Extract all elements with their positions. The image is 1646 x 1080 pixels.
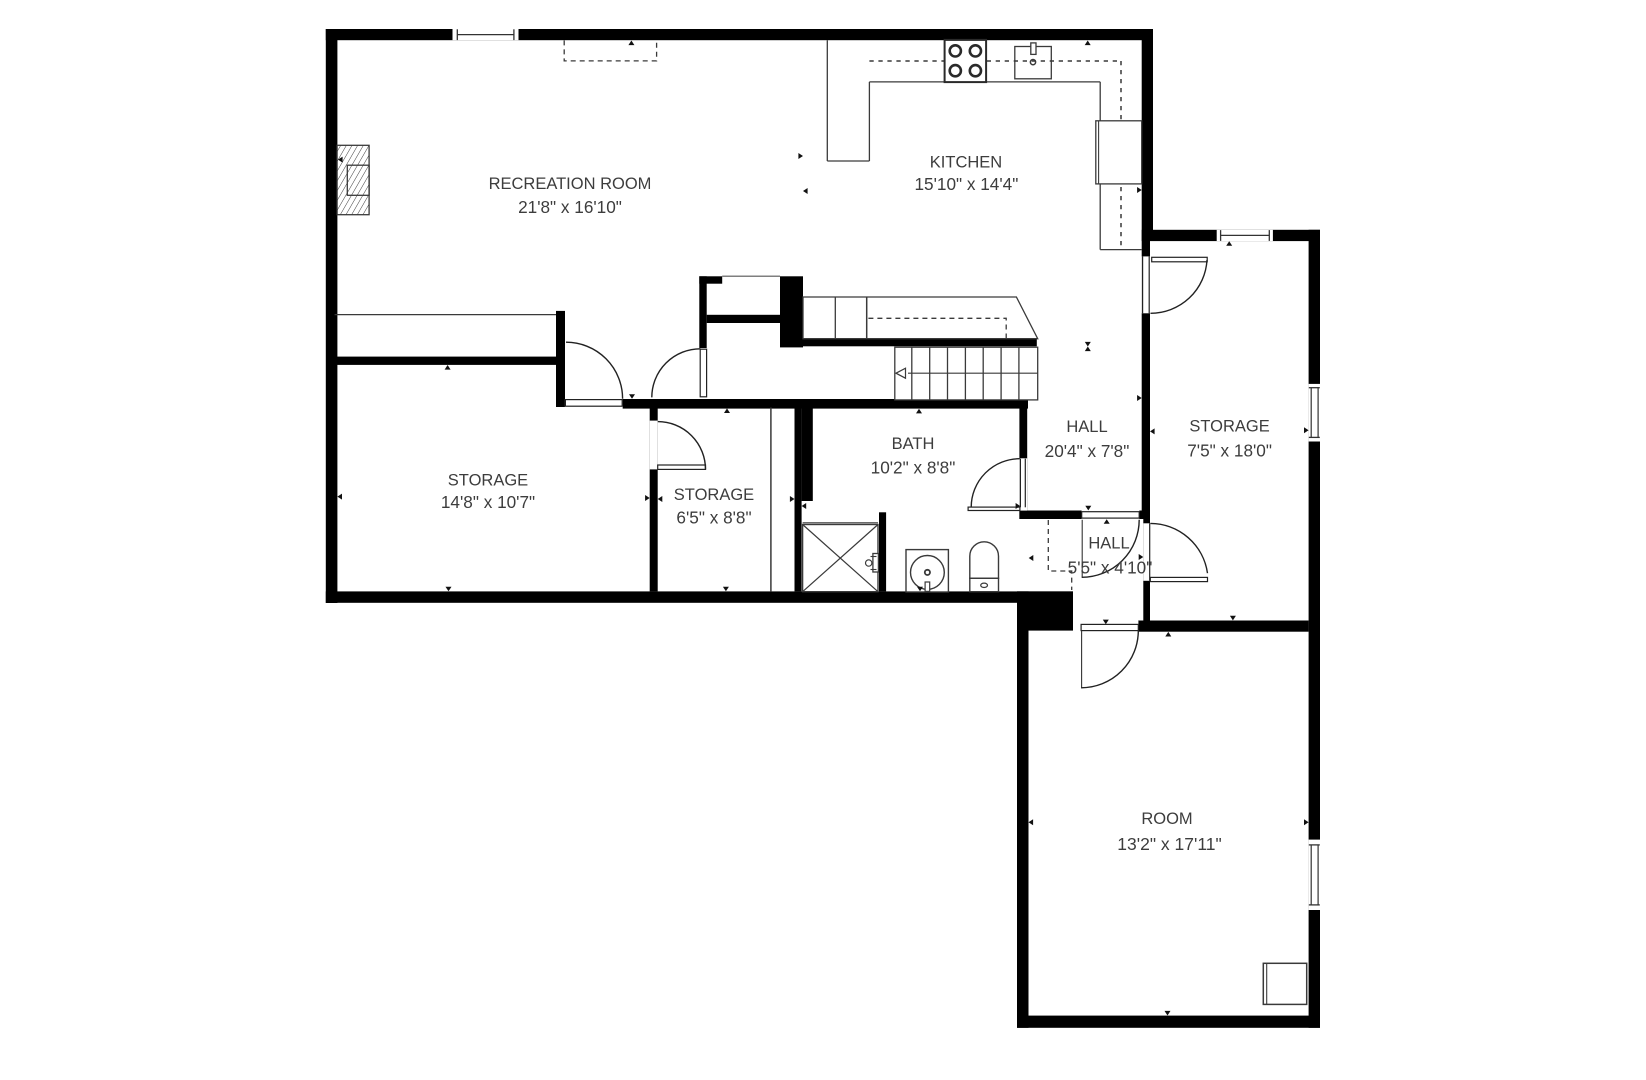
svg-text:10'2" x 8'8": 10'2" x 8'8" [871,458,956,478]
svg-text:STORAGE: STORAGE [1189,418,1269,436]
svg-text:15'10" x 14'4": 15'10" x 14'4" [914,174,1018,194]
svg-text:HALL: HALL [1066,418,1107,436]
svg-text:14'8" x 10'7": 14'8" x 10'7" [441,492,535,512]
svg-text:ROOM: ROOM [1141,810,1192,828]
svg-text:BATH: BATH [892,435,935,453]
svg-text:7'5" x 18'0": 7'5" x 18'0" [1187,441,1272,461]
svg-text:5'5" x 4'10": 5'5" x 4'10" [1068,557,1153,577]
svg-text:HALL: HALL [1088,535,1129,553]
svg-text:RECREATION ROOM: RECREATION ROOM [489,175,652,193]
svg-text:6'5" x 8'8": 6'5" x 8'8" [676,507,751,527]
svg-text:STORAGE: STORAGE [674,486,754,504]
svg-text:21'8" x 16'10": 21'8" x 16'10" [518,197,622,217]
svg-text:STORAGE: STORAGE [448,471,528,489]
svg-text:13'2" x 17'11": 13'2" x 17'11" [1117,834,1221,854]
svg-text:20'4" x 7'8": 20'4" x 7'8" [1045,441,1130,461]
svg-text:KITCHEN: KITCHEN [930,154,1002,172]
